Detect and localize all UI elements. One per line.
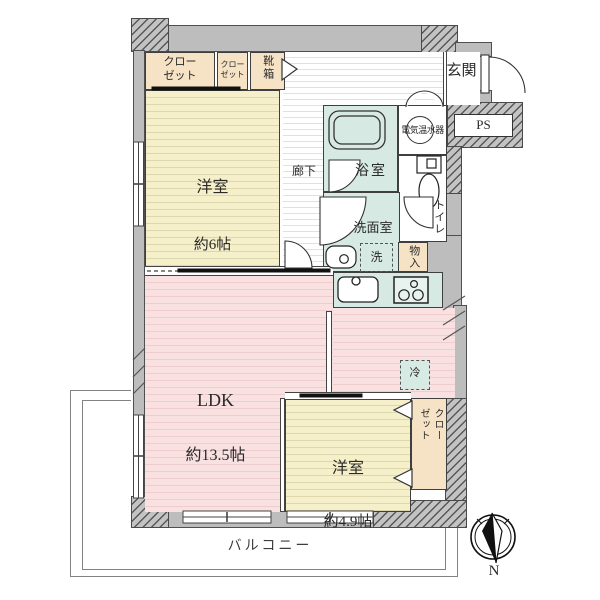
- heater-door-left: [406, 91, 424, 107]
- kitchen-sink-icon: [338, 277, 378, 302]
- door-triangles: [282, 59, 412, 487]
- entrance-door-leaf: [481, 55, 489, 93]
- bathroom-door: [329, 160, 360, 192]
- ldk-door: [285, 241, 312, 268]
- wall-slash-marks: [133, 296, 465, 394]
- stove-icon: [394, 277, 428, 303]
- plan-graphics: [0, 0, 600, 600]
- closet2-door-arrow-bottom: [394, 469, 412, 487]
- window-bedroom1-left: [134, 142, 144, 226]
- wash-basin-icon: [326, 246, 356, 268]
- closet2-door-arrow-top: [394, 401, 412, 419]
- floor-plan: クロー ゼット クロー ゼット 靴箱 玄関 PS 電気温水器 廊下 浴室 洗面室…: [0, 0, 600, 600]
- window-ldk-bottom: [183, 511, 271, 523]
- window-ldk-left: [134, 415, 144, 498]
- window-bedroom2-bottom: [287, 511, 373, 523]
- bathtub-icon: [329, 111, 385, 149]
- washroom-door: [320, 197, 366, 245]
- entrance-arrow-icon: [282, 59, 297, 80]
- heater-door-right: [424, 91, 443, 107]
- compass-icon: [471, 513, 515, 563]
- toilet-door: [404, 197, 433, 228]
- door-arcs: [285, 55, 525, 268]
- entrance-door-arc: [489, 57, 525, 93]
